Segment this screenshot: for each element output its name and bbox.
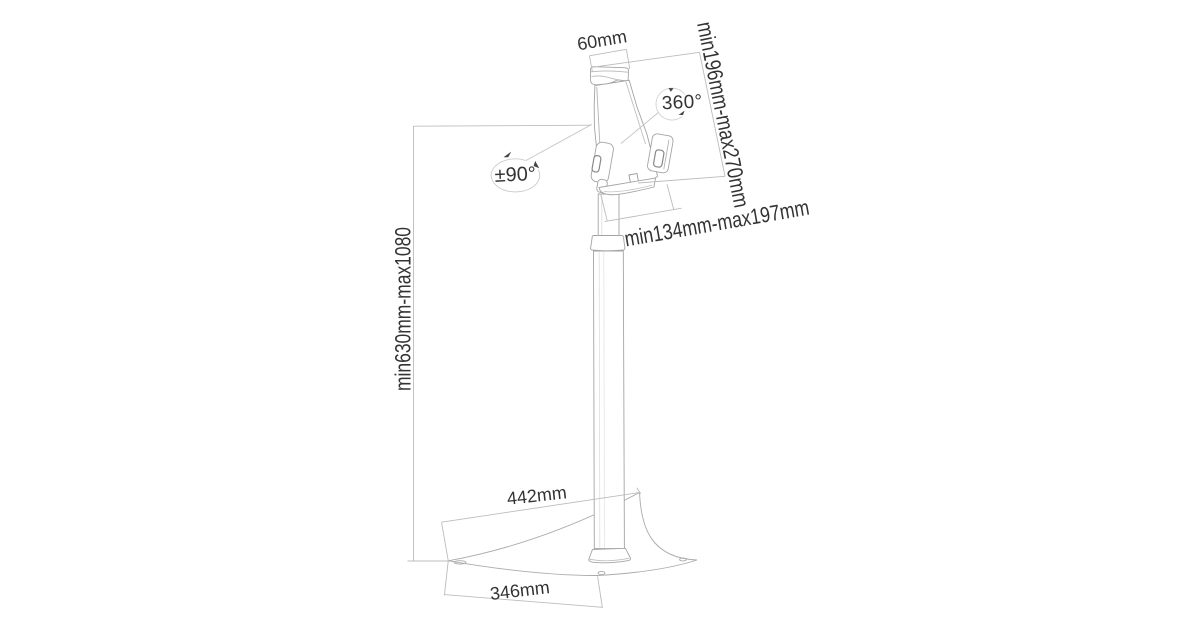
svg-text:min630mm-max1080: min630mm-max1080 (391, 227, 416, 391)
svg-text:346mm: 346mm (489, 577, 551, 604)
svg-text:min134mm-max197mm: min134mm-max197mm (623, 195, 812, 252)
svg-text:360°: 360° (661, 91, 703, 114)
svg-text:±90°: ±90° (494, 163, 536, 187)
svg-text:min196mm-max270mm: min196mm-max270mm (692, 20, 754, 210)
